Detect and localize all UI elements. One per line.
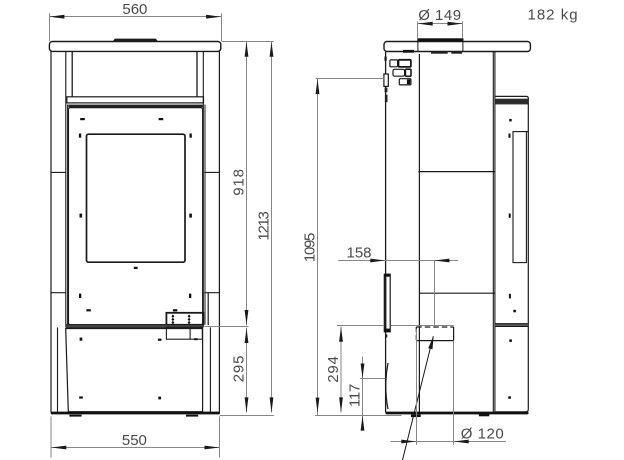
svg-text:560: 560 [122,1,147,18]
svg-text:Ø 149: Ø 149 [418,7,461,24]
svg-text:158: 158 [346,245,371,262]
svg-text:117: 117 [346,384,363,407]
svg-text:294: 294 [325,355,342,382]
svg-text:182 kg: 182 kg [528,7,579,24]
svg-text:918: 918 [230,168,247,195]
svg-text:550: 550 [122,432,147,449]
svg-text:295: 295 [230,355,247,382]
svg-text:1095: 1095 [301,233,318,262]
svg-text:1213: 1213 [256,211,273,240]
svg-text:Ø 120: Ø 120 [461,425,504,442]
